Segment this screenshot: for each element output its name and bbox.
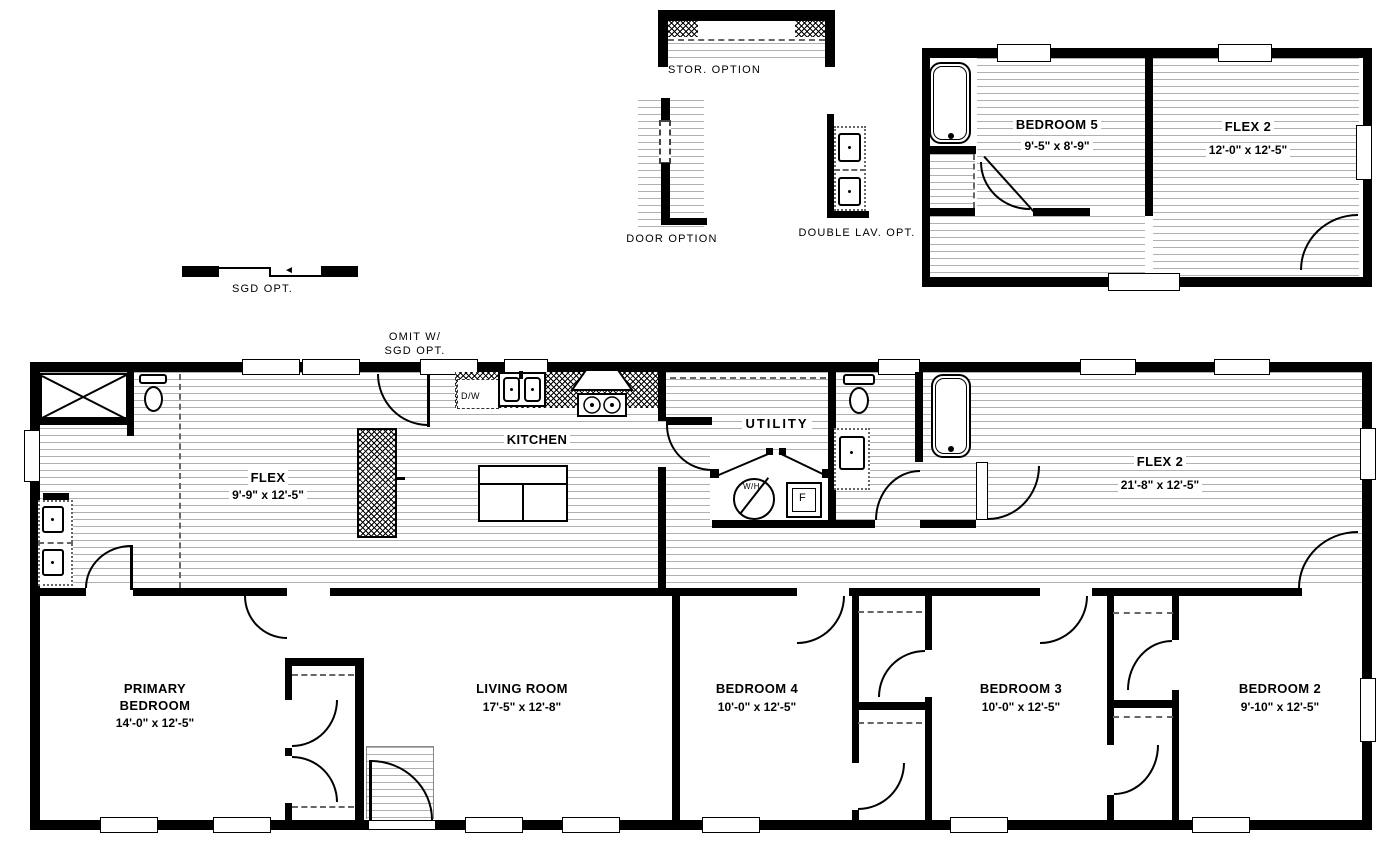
wall [1107, 795, 1114, 820]
door-arc [1040, 596, 1088, 644]
closet-rod [1113, 612, 1173, 614]
window [950, 817, 1008, 833]
wall [661, 163, 670, 220]
omit-note-line1: OMIT W/ [352, 331, 478, 343]
wall [1172, 596, 1179, 640]
wall [1107, 700, 1179, 708]
kitchen-island [478, 465, 568, 522]
door-arc [1114, 745, 1159, 795]
toilet-icon [139, 374, 167, 384]
room-dims-flex: 9'-9" x 12'-5" [188, 488, 348, 502]
floor-hatch [928, 154, 975, 208]
toilet-icon [144, 386, 163, 412]
room-label-kitchen: KITCHEN [457, 432, 617, 447]
wall [285, 658, 362, 666]
closet-rod [292, 674, 354, 676]
wall [661, 218, 707, 225]
wall [658, 372, 666, 421]
wall [925, 697, 932, 820]
closet-rod [858, 611, 922, 613]
sgd-arrow-icon: ◄ [284, 265, 295, 276]
window [100, 817, 158, 833]
room-label-bedroom5: BEDROOM 5 [977, 117, 1137, 132]
range-icon [570, 368, 634, 418]
closet-rod [858, 722, 922, 724]
omit-note-line2: SGD OPT. [352, 345, 478, 357]
faucet-dot [948, 446, 954, 452]
room-label-flex2: FLEX 2 [1080, 454, 1240, 469]
wall [852, 810, 859, 820]
counter-divider [834, 169, 866, 171]
room-dims-primary: 14'-0" x 12'-5" [75, 716, 235, 730]
door-arc [292, 700, 338, 747]
drain-dot [51, 561, 54, 564]
toilet-icon [843, 374, 875, 385]
wall [127, 372, 134, 436]
wall [828, 520, 875, 528]
room-label-flex2-option: FLEX 2 [1168, 119, 1328, 134]
faucet-dot [948, 133, 954, 139]
wall [658, 10, 835, 21]
wall [285, 658, 292, 700]
closet-rod [292, 806, 354, 808]
window [562, 817, 620, 833]
ceiling-break-line [670, 377, 826, 379]
door-arc [797, 596, 845, 644]
wall [30, 362, 1372, 372]
door-leaf [976, 462, 988, 520]
window [1214, 359, 1270, 375]
wall [330, 588, 797, 596]
door-arc [244, 596, 287, 639]
room-label-primary-line2: BEDROOM [75, 698, 235, 713]
door-arc [858, 763, 905, 810]
wall [1033, 208, 1090, 216]
room-label-flex: FLEX [188, 470, 348, 485]
cabinet [795, 21, 825, 37]
cabinet [668, 21, 698, 37]
window [302, 359, 360, 375]
closet-rod [1113, 716, 1173, 718]
wall [285, 803, 292, 820]
wall [1172, 690, 1179, 820]
window [465, 817, 523, 833]
door-option-label: DOOR OPTION [602, 233, 742, 245]
wall [661, 98, 670, 121]
bathtub-inner [933, 66, 967, 140]
room-dims-bedroom5: 9'-5" x 8'-9" [977, 139, 1137, 153]
wall [658, 10, 668, 67]
window [1218, 44, 1272, 62]
drain-dot [850, 451, 853, 454]
floor-hatch [930, 216, 1145, 277]
window [1108, 273, 1180, 291]
room-dims-flex2: 21'-8" x 12'-5" [1080, 478, 1240, 492]
wall [922, 146, 976, 154]
room-label-bedroom2: BEDROOM 2 [1200, 681, 1360, 696]
wall [827, 114, 834, 218]
wall [355, 658, 364, 820]
window [1192, 817, 1250, 833]
double-lav-option-label: DOUBLE LAV. OPT. [772, 227, 942, 239]
door-opening [369, 821, 435, 829]
wall [922, 48, 1371, 58]
sgd-option-label: SGD OPT. [205, 283, 320, 295]
pantry-cabinet [357, 428, 397, 538]
room-label-bedroom3: BEDROOM 3 [941, 681, 1101, 696]
room-dims-flex2-option: 12'-0" x 12'-5" [1168, 143, 1328, 157]
wall [285, 748, 292, 756]
sliding-door-line [218, 267, 271, 269]
wall [1145, 58, 1153, 216]
room-label-living: LIVING ROOM [442, 681, 602, 696]
wall [825, 10, 835, 67]
window [242, 359, 300, 375]
drain-dot [510, 388, 513, 391]
island-divider [522, 483, 524, 520]
wall [658, 467, 666, 588]
drain-dot [531, 388, 534, 391]
wall [852, 596, 859, 763]
floor-plan: STOR. OPTION DOOR OPTION DOUBLE LAV. OPT… [0, 0, 1400, 858]
door-arc [292, 756, 338, 802]
toilet-icon [849, 387, 869, 414]
window [702, 817, 760, 833]
wall [1107, 596, 1114, 745]
window [1356, 125, 1372, 180]
window [24, 430, 40, 482]
door-arc [1127, 640, 1172, 690]
floor-hatch [668, 43, 825, 64]
wall [712, 520, 830, 528]
window [1360, 428, 1376, 480]
window [213, 817, 271, 833]
wall [1092, 588, 1302, 596]
room-label-bedroom4: BEDROOM 4 [677, 681, 837, 696]
faucet-icon [519, 371, 523, 379]
room-label-primary-line1: PRIMARY [75, 681, 235, 696]
window [1360, 678, 1376, 742]
wall [36, 418, 130, 425]
window [878, 359, 920, 375]
wall [182, 266, 219, 277]
counter-divider [38, 542, 73, 544]
room-dims-bedroom2: 9'-10" x 12'-5" [1200, 700, 1360, 714]
wall [920, 520, 976, 528]
floor-hatch [638, 100, 704, 230]
closet-edge [973, 154, 975, 208]
wall [922, 208, 975, 216]
wall [849, 588, 1040, 596]
furnace-label: F [799, 492, 806, 504]
window [1080, 359, 1136, 375]
wall [852, 702, 932, 710]
stor-option-label: STOR. OPTION [668, 64, 838, 76]
wall [827, 211, 869, 218]
cabinet-handle [397, 477, 405, 480]
sliding-door-line [269, 275, 322, 277]
room-dims-bedroom3: 10'-0" x 12'-5" [941, 700, 1101, 714]
water-heater-label: W/H [743, 482, 760, 491]
wall [321, 266, 358, 277]
drain-dot [848, 146, 851, 149]
wall [925, 596, 932, 650]
room-dims-living: 17'-5" x 12'-8" [442, 700, 602, 714]
drain-dot [848, 190, 851, 193]
closet-rod [668, 39, 825, 41]
dishwasher-label: D/W [461, 391, 480, 401]
bathtub-inner [935, 378, 967, 454]
wall [133, 588, 287, 596]
drain-dot [51, 518, 54, 521]
door-arc [878, 650, 925, 697]
room-divider [179, 374, 181, 588]
door-opening [659, 120, 671, 164]
wall [40, 588, 86, 596]
room-dims-bedroom4: 10'-0" x 12'-5" [677, 700, 837, 714]
window [997, 44, 1051, 62]
wall [915, 372, 923, 462]
